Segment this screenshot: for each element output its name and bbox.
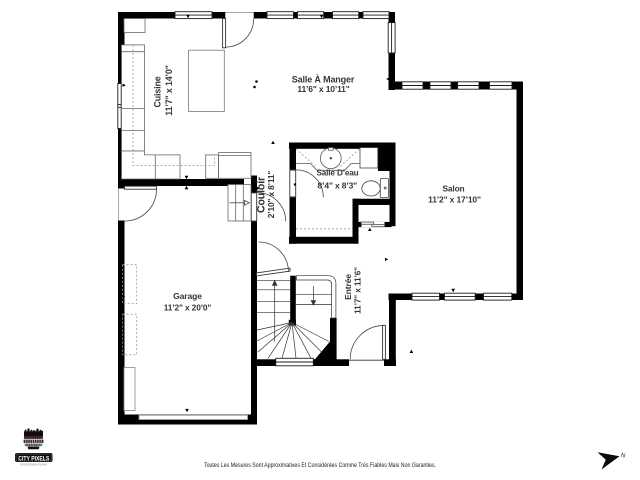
svg-text:Garage: Garage bbox=[173, 291, 202, 301]
svg-text:Salle À Manger: Salle À Manger bbox=[292, 74, 355, 84]
svg-text:11’7" x 11’6": 11’7" x 11’6" bbox=[353, 267, 363, 314]
svg-text:11’7" x 14’0": 11’7" x 14’0" bbox=[164, 65, 174, 115]
svg-text:2’10" x 8’11": 2’10" x 8’11" bbox=[266, 171, 276, 219]
svg-text:Toutes Les Mesures Sont Approx: Toutes Les Mesures Sont Approximatives E… bbox=[204, 462, 436, 469]
svg-text:Salon: Salon bbox=[442, 184, 464, 194]
svg-text:Cuisine: Cuisine bbox=[152, 76, 162, 107]
svg-text:11’2" x 20’0": 11’2" x 20’0" bbox=[164, 302, 212, 312]
svg-text:Salle D’eau: Salle D’eau bbox=[316, 168, 358, 177]
svg-text:REAL ESTATE MEDIA COMPANY: REAL ESTATE MEDIA COMPANY bbox=[20, 463, 47, 466]
svg-text:11’2" x 17’10": 11’2" x 17’10" bbox=[428, 195, 481, 205]
svg-text:8’4" x 8’3": 8’4" x 8’3" bbox=[318, 180, 358, 190]
svg-text:11’6" x 10’11": 11’6" x 10’11" bbox=[297, 84, 349, 94]
svg-text:CITY PIXELS: CITY PIXELS bbox=[18, 455, 50, 462]
svg-text:Entrée: Entrée bbox=[343, 274, 353, 300]
